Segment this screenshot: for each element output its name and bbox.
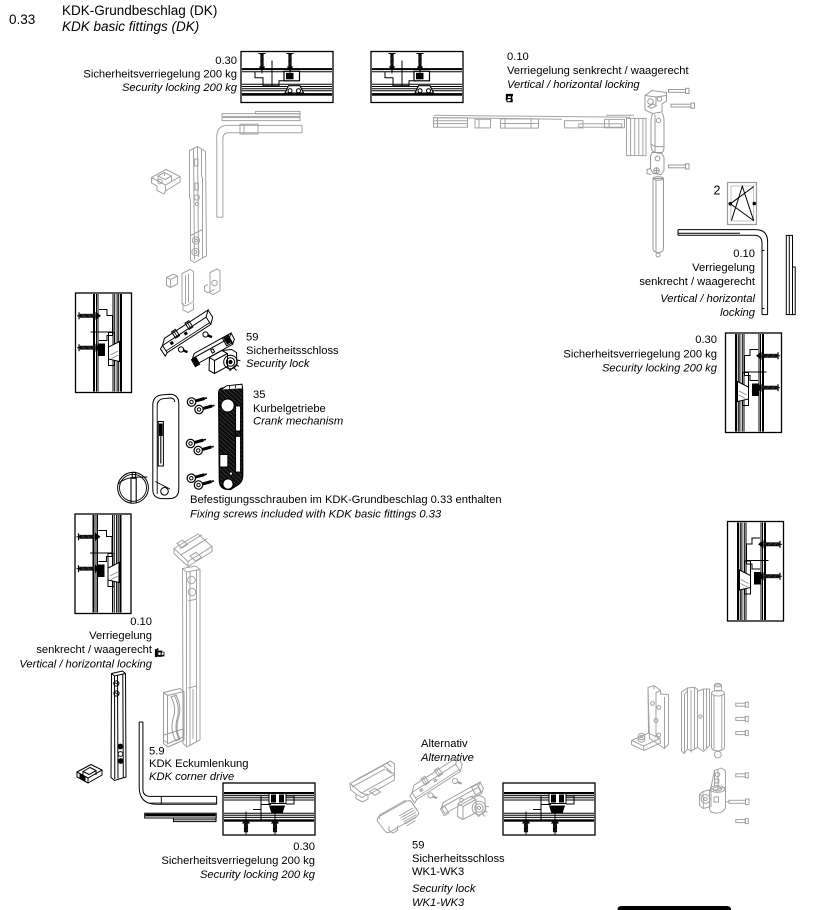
svg-text:KDK Eckumlenkung: KDK Eckumlenkung	[149, 758, 249, 770]
svg-text:Befestigungsschrauben im KDK-G: Befestigungsschrauben im KDK-Grundbeschl…	[190, 494, 502, 506]
svg-text:locking: locking	[720, 307, 756, 319]
svg-text:Vertical / horizontal locking: Vertical / horizontal locking	[507, 79, 640, 91]
svg-text:Security lock: Security lock	[412, 883, 477, 895]
svg-text:Verriegelung senkrecht / waage: Verriegelung senkrecht / waagerecht	[507, 65, 689, 77]
svg-text:Security locking 200 kg: Security locking 200 kg	[602, 363, 718, 375]
svg-text:0.10: 0.10	[130, 616, 152, 628]
svg-text:Verriegelung: Verriegelung	[89, 630, 152, 642]
svg-text:KDK basic fittings (DK): KDK basic fittings (DK)	[62, 19, 199, 34]
svg-text:Crank mechanism: Crank mechanism	[253, 416, 343, 428]
svg-text:Sicherheitsverriegelung 200 kg: Sicherheitsverriegelung 200 kg	[161, 855, 315, 867]
svg-text:Verriegelung: Verriegelung	[692, 262, 755, 274]
svg-text:0.30: 0.30	[293, 841, 315, 853]
svg-text:Sicherheitsverriegelung 200 kg: Sicherheitsverriegelung 200 kg	[563, 349, 717, 361]
svg-text:Sicherheitsschloss: Sicherheitsschloss	[412, 853, 505, 865]
svg-text:KDK corner drive: KDK corner drive	[149, 771, 234, 783]
svg-text:0.10: 0.10	[507, 51, 529, 63]
svg-text:WK1-WK3: WK1-WK3	[412, 897, 465, 909]
svg-text:Security locking 200 kg: Security locking 200 kg	[122, 82, 238, 94]
svg-text:0.30: 0.30	[215, 55, 237, 67]
svg-text:0.33: 0.33	[9, 12, 35, 27]
svg-text:Alternative: Alternative	[420, 752, 474, 764]
svg-text:Security lock: Security lock	[246, 358, 311, 370]
svg-text:WK1-WK3: WK1-WK3	[412, 866, 464, 878]
svg-text:Security locking 200 kg: Security locking 200 kg	[200, 869, 316, 881]
svg-text:Sicherheitsschloss: Sicherheitsschloss	[246, 345, 339, 357]
svg-text:0.30: 0.30	[695, 334, 717, 346]
svg-text:59: 59	[412, 840, 424, 852]
svg-text:Kurbelgetriebe: Kurbelgetriebe	[253, 403, 326, 415]
svg-text:Vertical / horizontal locking: Vertical / horizontal locking	[19, 659, 152, 671]
svg-text:KDK-Grundbeschlag (DK): KDK-Grundbeschlag (DK)	[62, 3, 217, 18]
svg-text:0.10: 0.10	[733, 248, 755, 260]
svg-text:Alternativ: Alternativ	[421, 738, 468, 750]
svg-text:35: 35	[253, 389, 265, 401]
svg-text:5.9: 5.9	[149, 746, 165, 758]
svg-text:Sicherheitsverriegelung 200 kg: Sicherheitsverriegelung 200 kg	[83, 69, 237, 81]
svg-text:senkrecht / waagerecht: senkrecht / waagerecht	[639, 276, 756, 288]
svg-text:2: 2	[714, 184, 721, 198]
svg-text:Vertical / horizontal: Vertical / horizontal	[660, 293, 755, 305]
svg-text:59: 59	[246, 332, 258, 344]
svg-text:senkrecht / waagerecht: senkrecht / waagerecht	[36, 644, 153, 656]
svg-text:Fixing screws included with KD: Fixing screws included with KDK basic fi…	[190, 509, 442, 521]
